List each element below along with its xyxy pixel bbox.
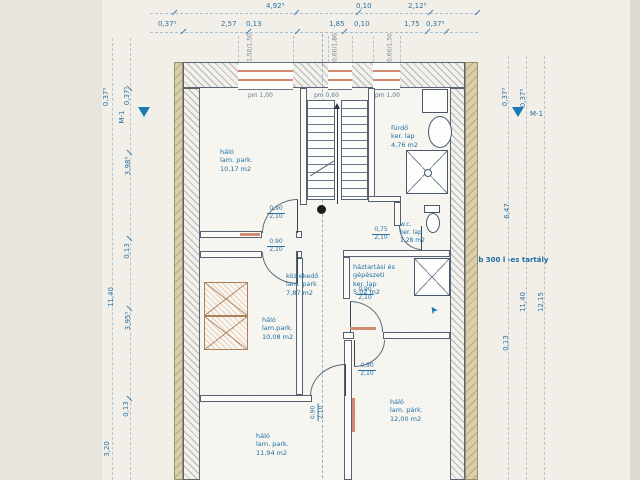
section-label-left: M-1 (118, 95, 126, 139)
tank-annotation: 2 db 300 l -es tartály (466, 256, 548, 264)
dim-left-outer-2: 3,20 (103, 427, 111, 471)
dim-line-right-c (544, 56, 545, 480)
radiator-2 (350, 327, 376, 330)
window-parapet-1: pm 1,00 (248, 92, 273, 99)
dim-right-mid-1: 11,40 (519, 280, 527, 324)
shower-drain (424, 169, 432, 177)
utility-equipment-box (414, 258, 450, 296)
wall-top-exterior (183, 62, 465, 88)
wall-utility-north (343, 250, 450, 257)
room-name: háló (220, 148, 253, 156)
room-name: háló (390, 398, 423, 406)
window-2 (328, 62, 352, 90)
dim-right-inner-2: 0,13 (502, 321, 510, 365)
room-name: w.c. (400, 221, 425, 229)
window-1 (238, 62, 293, 90)
window-glass-line (238, 70, 293, 72)
room-floor: lam. park. (256, 440, 289, 448)
window-parapet-3: pm 1,00 (375, 92, 400, 99)
window-3 (373, 62, 400, 90)
door-label-bedroom2: 0,90 2,10 (267, 239, 285, 254)
wall-stair-west (300, 88, 307, 205)
extension-line (328, 36, 329, 62)
room-label-utility: háztartási és gépészeti ker. lap 5,02 m2 (353, 263, 413, 297)
dim-right-outer-0: 12,15 (537, 280, 545, 324)
dim-right-inner-1: 6,47 (503, 189, 511, 233)
section-label-right: M-1 (530, 110, 543, 118)
extension-line (373, 36, 374, 62)
wall-utility-west (343, 257, 350, 299)
dim-tick (475, 10, 481, 16)
room-label-wc: w.c. ker. lap 1,28 m2 (400, 221, 425, 244)
wall-bedroom3-north (200, 395, 312, 402)
room-floor: lam.park. (262, 324, 293, 332)
room-floor: lam. párk. (390, 406, 423, 414)
wall-bedroom2-north-a (200, 251, 262, 258)
room-label-bathroom: fürdő ker. lap 4,76 m2 (391, 124, 418, 149)
room-name: közlekedő (286, 272, 318, 280)
paper-left-margin (0, 0, 102, 480)
floor-plan-scan: 4,92⁵ 0,10 2,12⁵ 0,37⁵ 2,57 0,13 1,85 0,… (0, 0, 640, 480)
furniture-box-1 (204, 282, 248, 316)
window-glass-line (328, 79, 352, 81)
room-label-bedroom2: háló lam.park. 10,08 m2 (262, 316, 293, 341)
room-area: 10,17 m2 (220, 165, 253, 173)
room-label-bedroom1: háló lam. park. 10,17 m2 (220, 148, 253, 173)
door-width: 0,90 (267, 206, 285, 213)
window-glass-line (238, 79, 293, 81)
window-parapet-2: pm 0,60 (314, 92, 339, 99)
dim-right-inner-0: 0,37⁵ (501, 75, 509, 119)
dim-top1-1: 0,10 (356, 2, 372, 10)
wall-right-insulation (465, 62, 478, 480)
room-area: 4,76 m2 (391, 141, 418, 149)
door-width: 0,90 (311, 403, 318, 421)
door-label-wc: 0,75 2,10 (372, 227, 390, 242)
dim-top1-2: 2,12⁵ (408, 2, 426, 10)
stair-direction-line (337, 108, 338, 204)
door-height: 2,10 (267, 246, 285, 254)
toilet-bowl (426, 213, 440, 233)
dim-line-left-a (112, 38, 113, 480)
toilet-tank (424, 205, 440, 213)
door-width: 0,90 (358, 363, 376, 370)
dim-line-top-2 (150, 32, 478, 33)
wall-bath-west (368, 88, 375, 200)
room-area: 10,08 m2 (262, 333, 293, 341)
room-label-bedroom3: háló lam. park. 11,94 m2 (256, 432, 289, 457)
door-height: 2,10 (372, 234, 390, 242)
extension-line (238, 36, 239, 62)
door-width: 0,75 (372, 227, 390, 234)
door-label-bedroom1: 0,90 2,10 (267, 206, 285, 221)
room-floor: lam. park. (220, 156, 253, 164)
room-floor: lam. park (286, 280, 318, 288)
bathroom-sink (428, 116, 452, 148)
room-name: fürdő (391, 124, 418, 132)
room-name: háztartási és gépészeti (353, 263, 413, 280)
door-height: 2,10 (267, 213, 285, 221)
door-label-bedroom3: 0,90 2,10 (311, 403, 326, 421)
door-height: 2,10 (318, 403, 326, 421)
room-name: háló (262, 316, 293, 324)
room-area: 12,00 m2 (390, 415, 423, 423)
extension-line (293, 36, 294, 62)
wall-right-exterior (450, 88, 465, 480)
dim-top2-0: 0,37⁵ (158, 20, 176, 28)
radiator-3 (352, 398, 355, 432)
stair-direction-arrow (334, 103, 340, 109)
dim-top2-6: 0,37⁵ (426, 20, 444, 28)
room-floor: ker. lap (391, 132, 418, 140)
stair-stringer (334, 100, 342, 200)
room-area: 7,87 m2 (286, 289, 318, 297)
window-glass-line (373, 79, 400, 81)
window-glass-line (373, 70, 400, 72)
room-label-bedroom4: háló lam. párk. 12,00 m2 (390, 398, 423, 423)
door-height: 2,10 (358, 370, 376, 378)
door-label-bedroom4: 0,90 2,10 (358, 363, 376, 378)
section-marker-icon (138, 107, 150, 117)
dim-left-outer-0: 0,37⁵ (102, 75, 110, 119)
furniture-box-2 (204, 316, 248, 350)
paper-right-edge (630, 0, 640, 480)
wall-utility-south-a (343, 332, 354, 339)
extension-line (352, 36, 353, 62)
dim-top2-5: 1,75 (404, 20, 420, 28)
wall-bedrooms-divider (344, 340, 352, 480)
dim-left-inner-4: 0,13 (122, 387, 130, 431)
dim-top2-1: 2,57 (221, 20, 237, 28)
wall-left-insulation (174, 62, 183, 480)
dim-top1-0: 4,92⁵ (266, 2, 284, 10)
dim-left-outer-1: 11,40 (107, 275, 115, 319)
room-label-hallway: közlekedő lam. park 7,87 m2 (286, 272, 318, 297)
room-floor: ker. lap (400, 229, 425, 237)
room-floor: ker. lap (353, 280, 413, 288)
room-area: 5,02 m2 (353, 288, 413, 296)
room-area: 11,94 m2 (256, 449, 289, 457)
section-marker-icon (512, 107, 524, 117)
washing-machine (422, 89, 448, 113)
room-area: 1,28 m2 (400, 237, 425, 245)
radiator-1 (240, 233, 260, 236)
wall-left-exterior (183, 88, 200, 480)
extension-line (400, 36, 401, 62)
room-name: háló (256, 432, 289, 440)
stair-newel-dot (317, 205, 326, 214)
window-glass-line (328, 70, 352, 72)
dim-line-right-a (508, 56, 509, 480)
door-width: 0,90 (267, 239, 285, 246)
dim-top2-4: 0,10 (354, 20, 370, 28)
wall-utility-south-b (383, 332, 450, 339)
